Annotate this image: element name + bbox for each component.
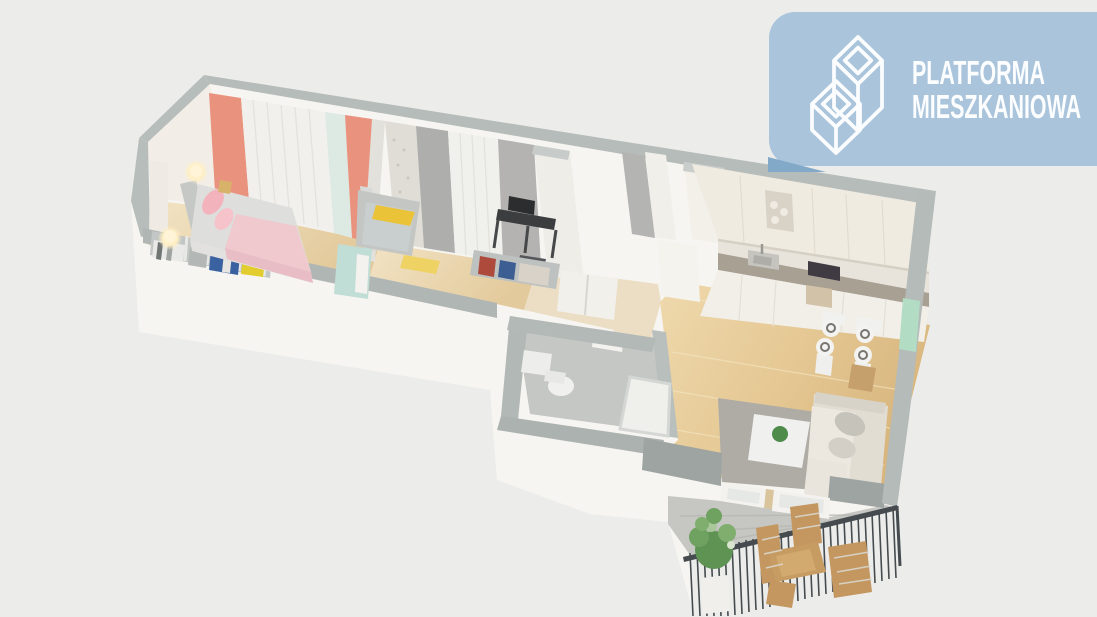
svg-text:MIESZKANIOWA: MIESZKANIOWA [912, 88, 1081, 125]
svg-text:PLATFORMA: PLATFORMA [912, 54, 1045, 91]
